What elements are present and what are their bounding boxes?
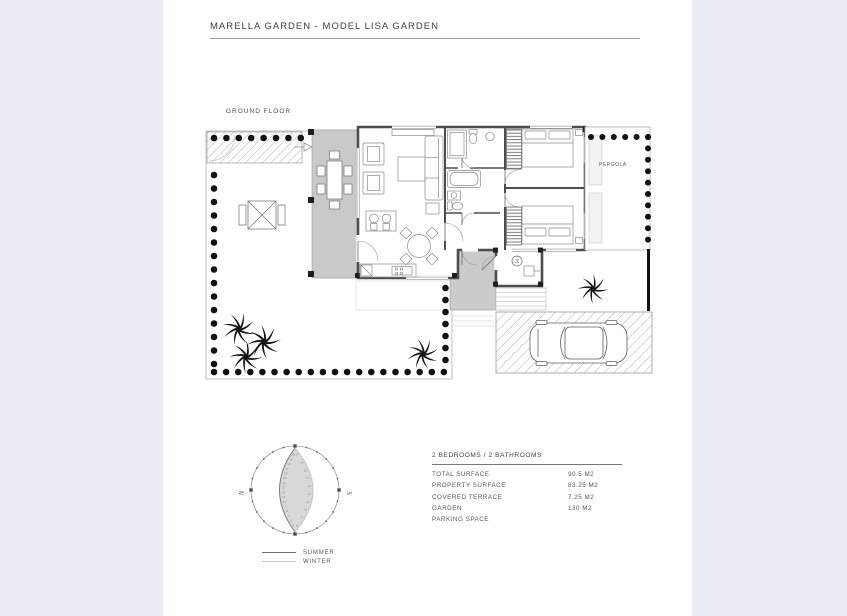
garden-dots-left <box>211 172 218 368</box>
parking-area <box>496 312 652 373</box>
row-value: 130 M2 <box>568 505 632 512</box>
summer-label: SUMMER <box>303 550 334 556</box>
table-row: PARKING SPACE <box>432 514 632 525</box>
table-row: COVERED TERRACE 7.25 M2 <box>432 492 632 503</box>
table-row: PROPERTY SURFACE 83.25 M2 <box>432 480 632 491</box>
entry-walkway <box>207 132 312 163</box>
property-details: 2 BEDROOMS / 2 BATHROOMS TOTAL SURFACE 9… <box>432 452 632 525</box>
svg-text:19: 19 <box>289 457 293 461</box>
car-icon <box>530 321 627 366</box>
svg-text:16: 16 <box>300 461 304 465</box>
page-title: MARELLA GARDEN - MODEL LISA GARDEN <box>210 21 439 32</box>
season-legend: SUMMER WINTER <box>262 548 334 566</box>
winter-label: WINTER <box>303 559 331 565</box>
table-row: TOTAL SURFACE 90.5 M2 <box>432 469 632 480</box>
legend-row-summer: SUMMER <box>262 548 334 557</box>
table-row: GARDEN 130 M2 <box>432 503 632 514</box>
row-value: 7.25 M2 <box>568 494 632 501</box>
palm-tree-icon <box>573 269 613 309</box>
north-label: N <box>238 490 246 496</box>
svg-text:13: 13 <box>282 486 286 490</box>
svg-text:11: 11 <box>306 500 309 504</box>
row-value: 83.25 M2 <box>568 482 632 489</box>
row-label: PROPERTY SURFACE <box>432 482 568 489</box>
garden-table <box>239 201 285 229</box>
svg-text:17: 17 <box>295 453 299 457</box>
svg-text:10: 10 <box>304 508 308 512</box>
utility-symbol: H <box>513 259 519 263</box>
svg-text:18: 18 <box>287 462 291 466</box>
details-underline <box>432 464 622 465</box>
details-header: 2 BEDROOMS / 2 BATHROOMS <box>432 452 632 460</box>
svg-text:14: 14 <box>282 481 286 485</box>
row-label: GARDEN <box>432 505 568 512</box>
svg-text:11: 11 <box>282 495 285 499</box>
legend-row-winter: WINTER <box>262 557 334 566</box>
floorplan-drawing: H PERGOLA <box>200 123 655 385</box>
svg-text:12: 12 <box>307 492 311 496</box>
svg-text:12: 12 <box>282 490 286 494</box>
row-value: 90.5 M2 <box>568 471 632 478</box>
title-underline <box>210 38 640 39</box>
svg-text:10: 10 <box>283 500 287 504</box>
svg-text:16: 16 <box>284 472 288 476</box>
winter-line-icon <box>262 561 296 562</box>
svg-text:14: 14 <box>306 476 310 480</box>
svg-text:13: 13 <box>307 484 311 488</box>
svg-text:15: 15 <box>304 468 308 472</box>
svg-text:17: 17 <box>285 467 289 471</box>
pergola-label: PERGOLA <box>599 162 627 168</box>
summer-line-icon <box>262 552 296 553</box>
south-label: S <box>345 491 353 495</box>
row-label: PARKING SPACE <box>432 516 568 523</box>
floor-label: GROUND FLOOR <box>226 108 291 115</box>
row-label: TOTAL SURFACE <box>432 471 568 478</box>
sun-path-compass: 201918171615141312111098765 171615141312… <box>237 436 353 546</box>
row-label: COVERED TERRACE <box>432 494 568 501</box>
stairs <box>496 288 546 310</box>
svg-text:15: 15 <box>283 476 287 480</box>
document-page: MARELLA GARDEN - MODEL LISA GARDEN GROUN… <box>163 0 692 616</box>
pergola: PERGOLA <box>585 127 650 250</box>
